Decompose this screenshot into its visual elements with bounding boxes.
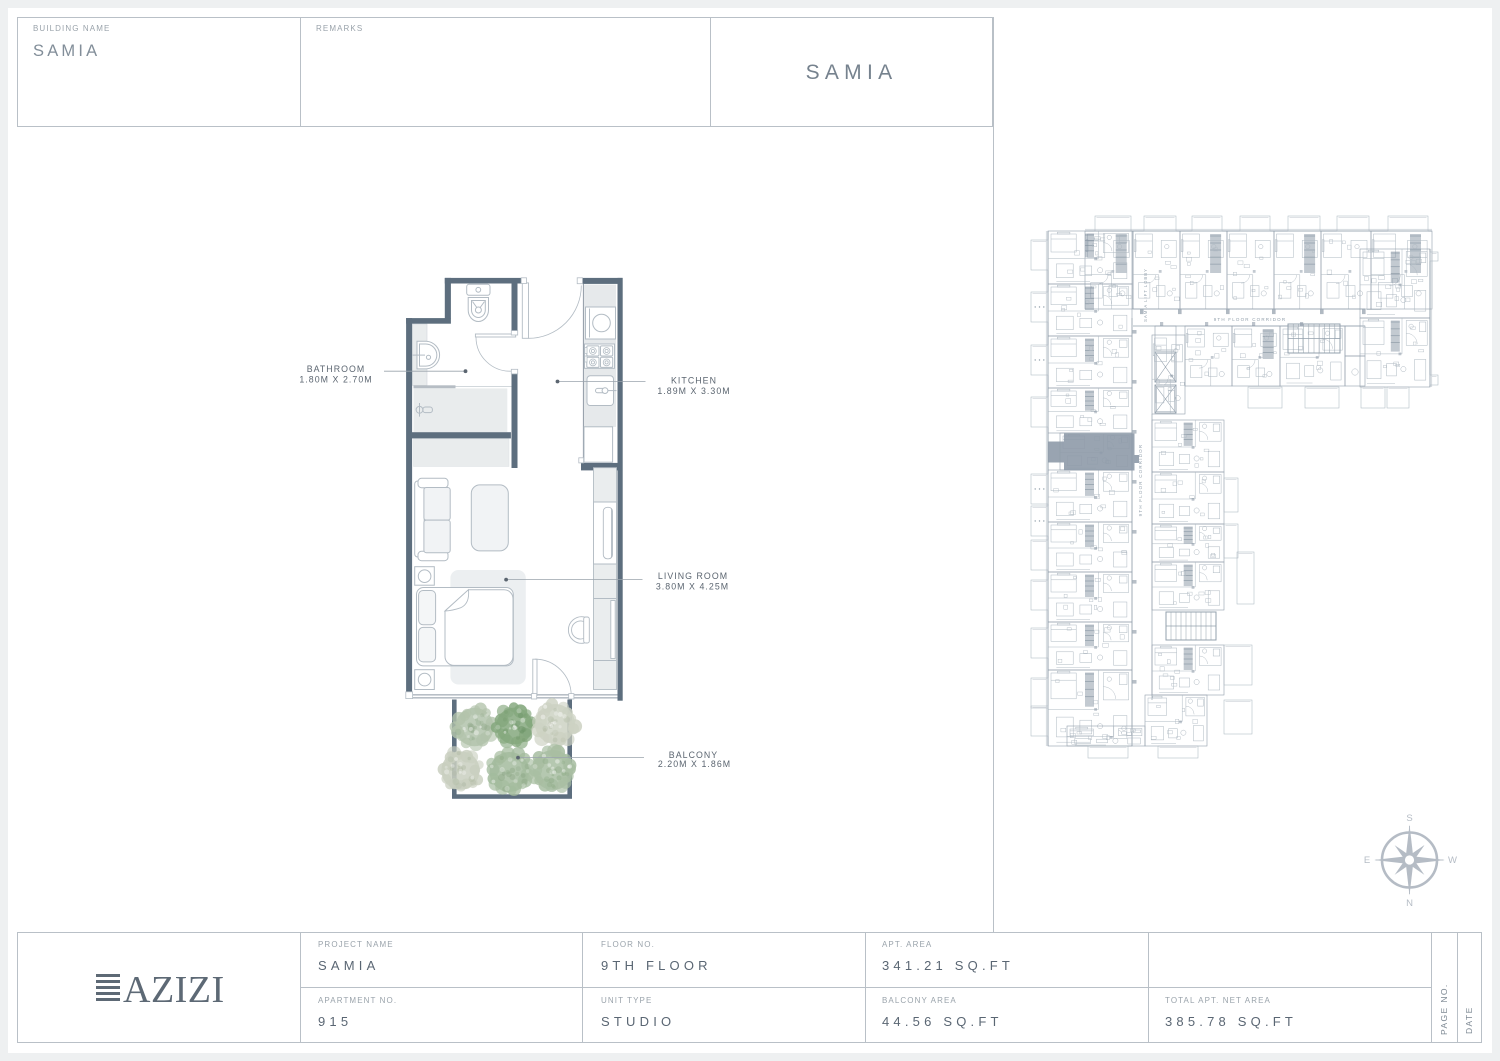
svg-text:LIVING ROOM: LIVING ROOM (658, 571, 728, 581)
svg-text:1.89M X 3.30M: 1.89M X 3.30M (657, 386, 730, 396)
svg-text:KITCHEN: KITCHEN (671, 376, 717, 386)
svg-text:S: S (1406, 813, 1412, 824)
svg-text:2.20M X 1.86M: 2.20M X 1.86M (658, 759, 731, 769)
svg-text:E: E (1364, 855, 1370, 866)
svg-text:SAMIA LIFT LOBBY: SAMIA LIFT LOBBY (1143, 268, 1148, 322)
svg-text:1.80M X 2.70M: 1.80M X 2.70M (299, 374, 372, 384)
svg-text:3.80M X 4.25M: 3.80M X 4.25M (656, 581, 729, 591)
svg-text:9TH FLOOR CORRIDOR: 9TH FLOOR CORRIDOR (1138, 444, 1143, 517)
svg-text:N: N (1406, 898, 1413, 909)
svg-text:W: W (1448, 855, 1457, 866)
svg-text:9TH FLOOR CORRIDOR: 9TH FLOOR CORRIDOR (1214, 317, 1287, 322)
svg-text:BATHROOM: BATHROOM (307, 364, 366, 374)
